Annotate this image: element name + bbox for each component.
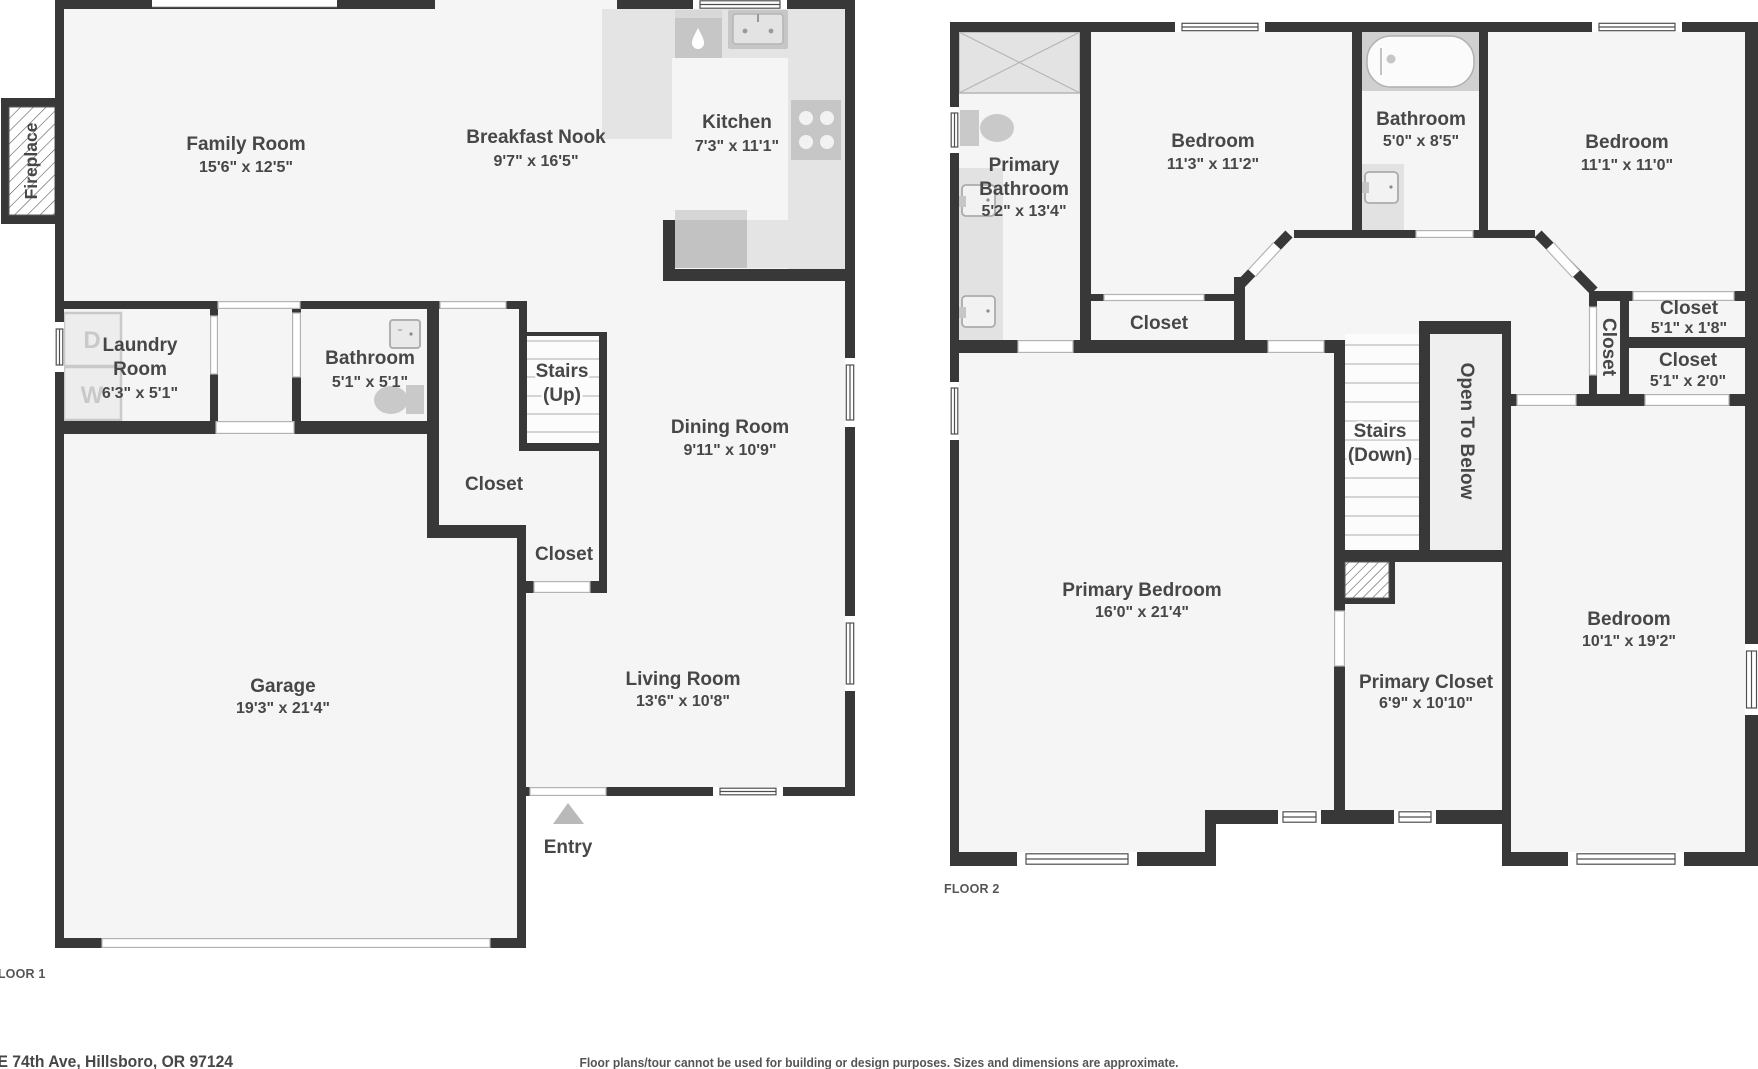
- svg-text:Kitchen: Kitchen: [702, 112, 772, 133]
- svg-text:Bathroom: Bathroom: [325, 348, 415, 369]
- svg-text:Room: Room: [113, 359, 167, 380]
- svg-text:Dining Room: Dining Room: [671, 417, 789, 438]
- svg-text:Bathroom: Bathroom: [1376, 109, 1466, 130]
- svg-text:10'1" x 19'2": 10'1" x 19'2": [1582, 633, 1676, 650]
- svg-text:Family Room: Family Room: [186, 134, 305, 155]
- svg-text:15'6" x 12'5": 15'6" x 12'5": [199, 159, 293, 176]
- svg-text:D: D: [83, 327, 100, 354]
- svg-text:Living Room: Living Room: [625, 669, 740, 690]
- svg-text:FLOOR 2: FLOOR 2: [944, 882, 1000, 896]
- svg-text:Garage: Garage: [250, 676, 315, 697]
- svg-text:5'0" x 8'5": 5'0" x 8'5": [1383, 133, 1459, 150]
- svg-text:(Down): (Down): [1348, 445, 1412, 466]
- svg-text:SE 74th Ave, Hillsboro, OR 971: SE 74th Ave, Hillsboro, OR 97124: [0, 1053, 234, 1069]
- svg-text:Bedroom: Bedroom: [1585, 132, 1668, 153]
- svg-text:Bathroom: Bathroom: [979, 179, 1069, 200]
- svg-text:11'3" x 11'2": 11'3" x 11'2": [1167, 156, 1259, 173]
- svg-text:Closet: Closet: [465, 474, 524, 495]
- svg-text:Bedroom: Bedroom: [1171, 131, 1254, 152]
- svg-text:Closet: Closet: [535, 544, 594, 565]
- svg-text:5'2" x 13'4": 5'2" x 13'4": [981, 203, 1066, 220]
- svg-text:(Up): (Up): [543, 385, 581, 406]
- svg-text:9'7" x 16'5": 9'7" x 16'5": [493, 153, 578, 170]
- svg-text:Breakfast Nook: Breakfast Nook: [466, 127, 606, 148]
- svg-text:Stairs: Stairs: [536, 361, 589, 382]
- svg-text:5'1" x 2'0": 5'1" x 2'0": [1650, 373, 1726, 390]
- svg-text:Closet: Closet: [1659, 350, 1718, 371]
- svg-text:5'1" x 5'1": 5'1" x 5'1": [332, 374, 408, 391]
- svg-text:6'3" x 5'1": 6'3" x 5'1": [102, 385, 178, 402]
- svg-text:13'6" x 10'8": 13'6" x 10'8": [636, 693, 730, 710]
- svg-text:Stairs: Stairs: [1354, 421, 1407, 442]
- svg-text:6'9" x 10'10": 6'9" x 10'10": [1379, 695, 1473, 712]
- svg-text:Open To Below: Open To Below: [1456, 363, 1477, 500]
- svg-text:Closet: Closet: [1660, 298, 1719, 319]
- svg-text:Bedroom: Bedroom: [1587, 609, 1670, 630]
- svg-text:Closet: Closet: [1598, 318, 1619, 377]
- svg-text:Primary Closet: Primary Closet: [1359, 672, 1494, 693]
- svg-text:16'0" x 21'4": 16'0" x 21'4": [1095, 604, 1189, 621]
- svg-text:Primary Bedroom: Primary Bedroom: [1062, 580, 1221, 601]
- svg-text:5'1" x 1'8": 5'1" x 1'8": [1651, 320, 1727, 337]
- svg-text:FLOOR 1: FLOOR 1: [0, 967, 46, 981]
- svg-text:W: W: [81, 382, 104, 409]
- svg-text:19'3" x 21'4": 19'3" x 21'4": [236, 700, 330, 717]
- svg-text:9'11" x 10'9": 9'11" x 10'9": [683, 442, 776, 459]
- svg-text:Fireplace: Fireplace: [21, 122, 41, 199]
- svg-text:Primary: Primary: [989, 155, 1060, 176]
- svg-text:Floor plans/tour cannot be use: Floor plans/tour cannot be used for buil…: [580, 1056, 1179, 1069]
- svg-text:Closet: Closet: [1130, 313, 1189, 334]
- svg-text:Entry: Entry: [544, 837, 593, 858]
- svg-text:7'3" x 11'1": 7'3" x 11'1": [695, 138, 779, 155]
- svg-text:Laundry: Laundry: [103, 335, 178, 356]
- svg-text:11'1" x 11'0": 11'1" x 11'0": [1581, 157, 1673, 174]
